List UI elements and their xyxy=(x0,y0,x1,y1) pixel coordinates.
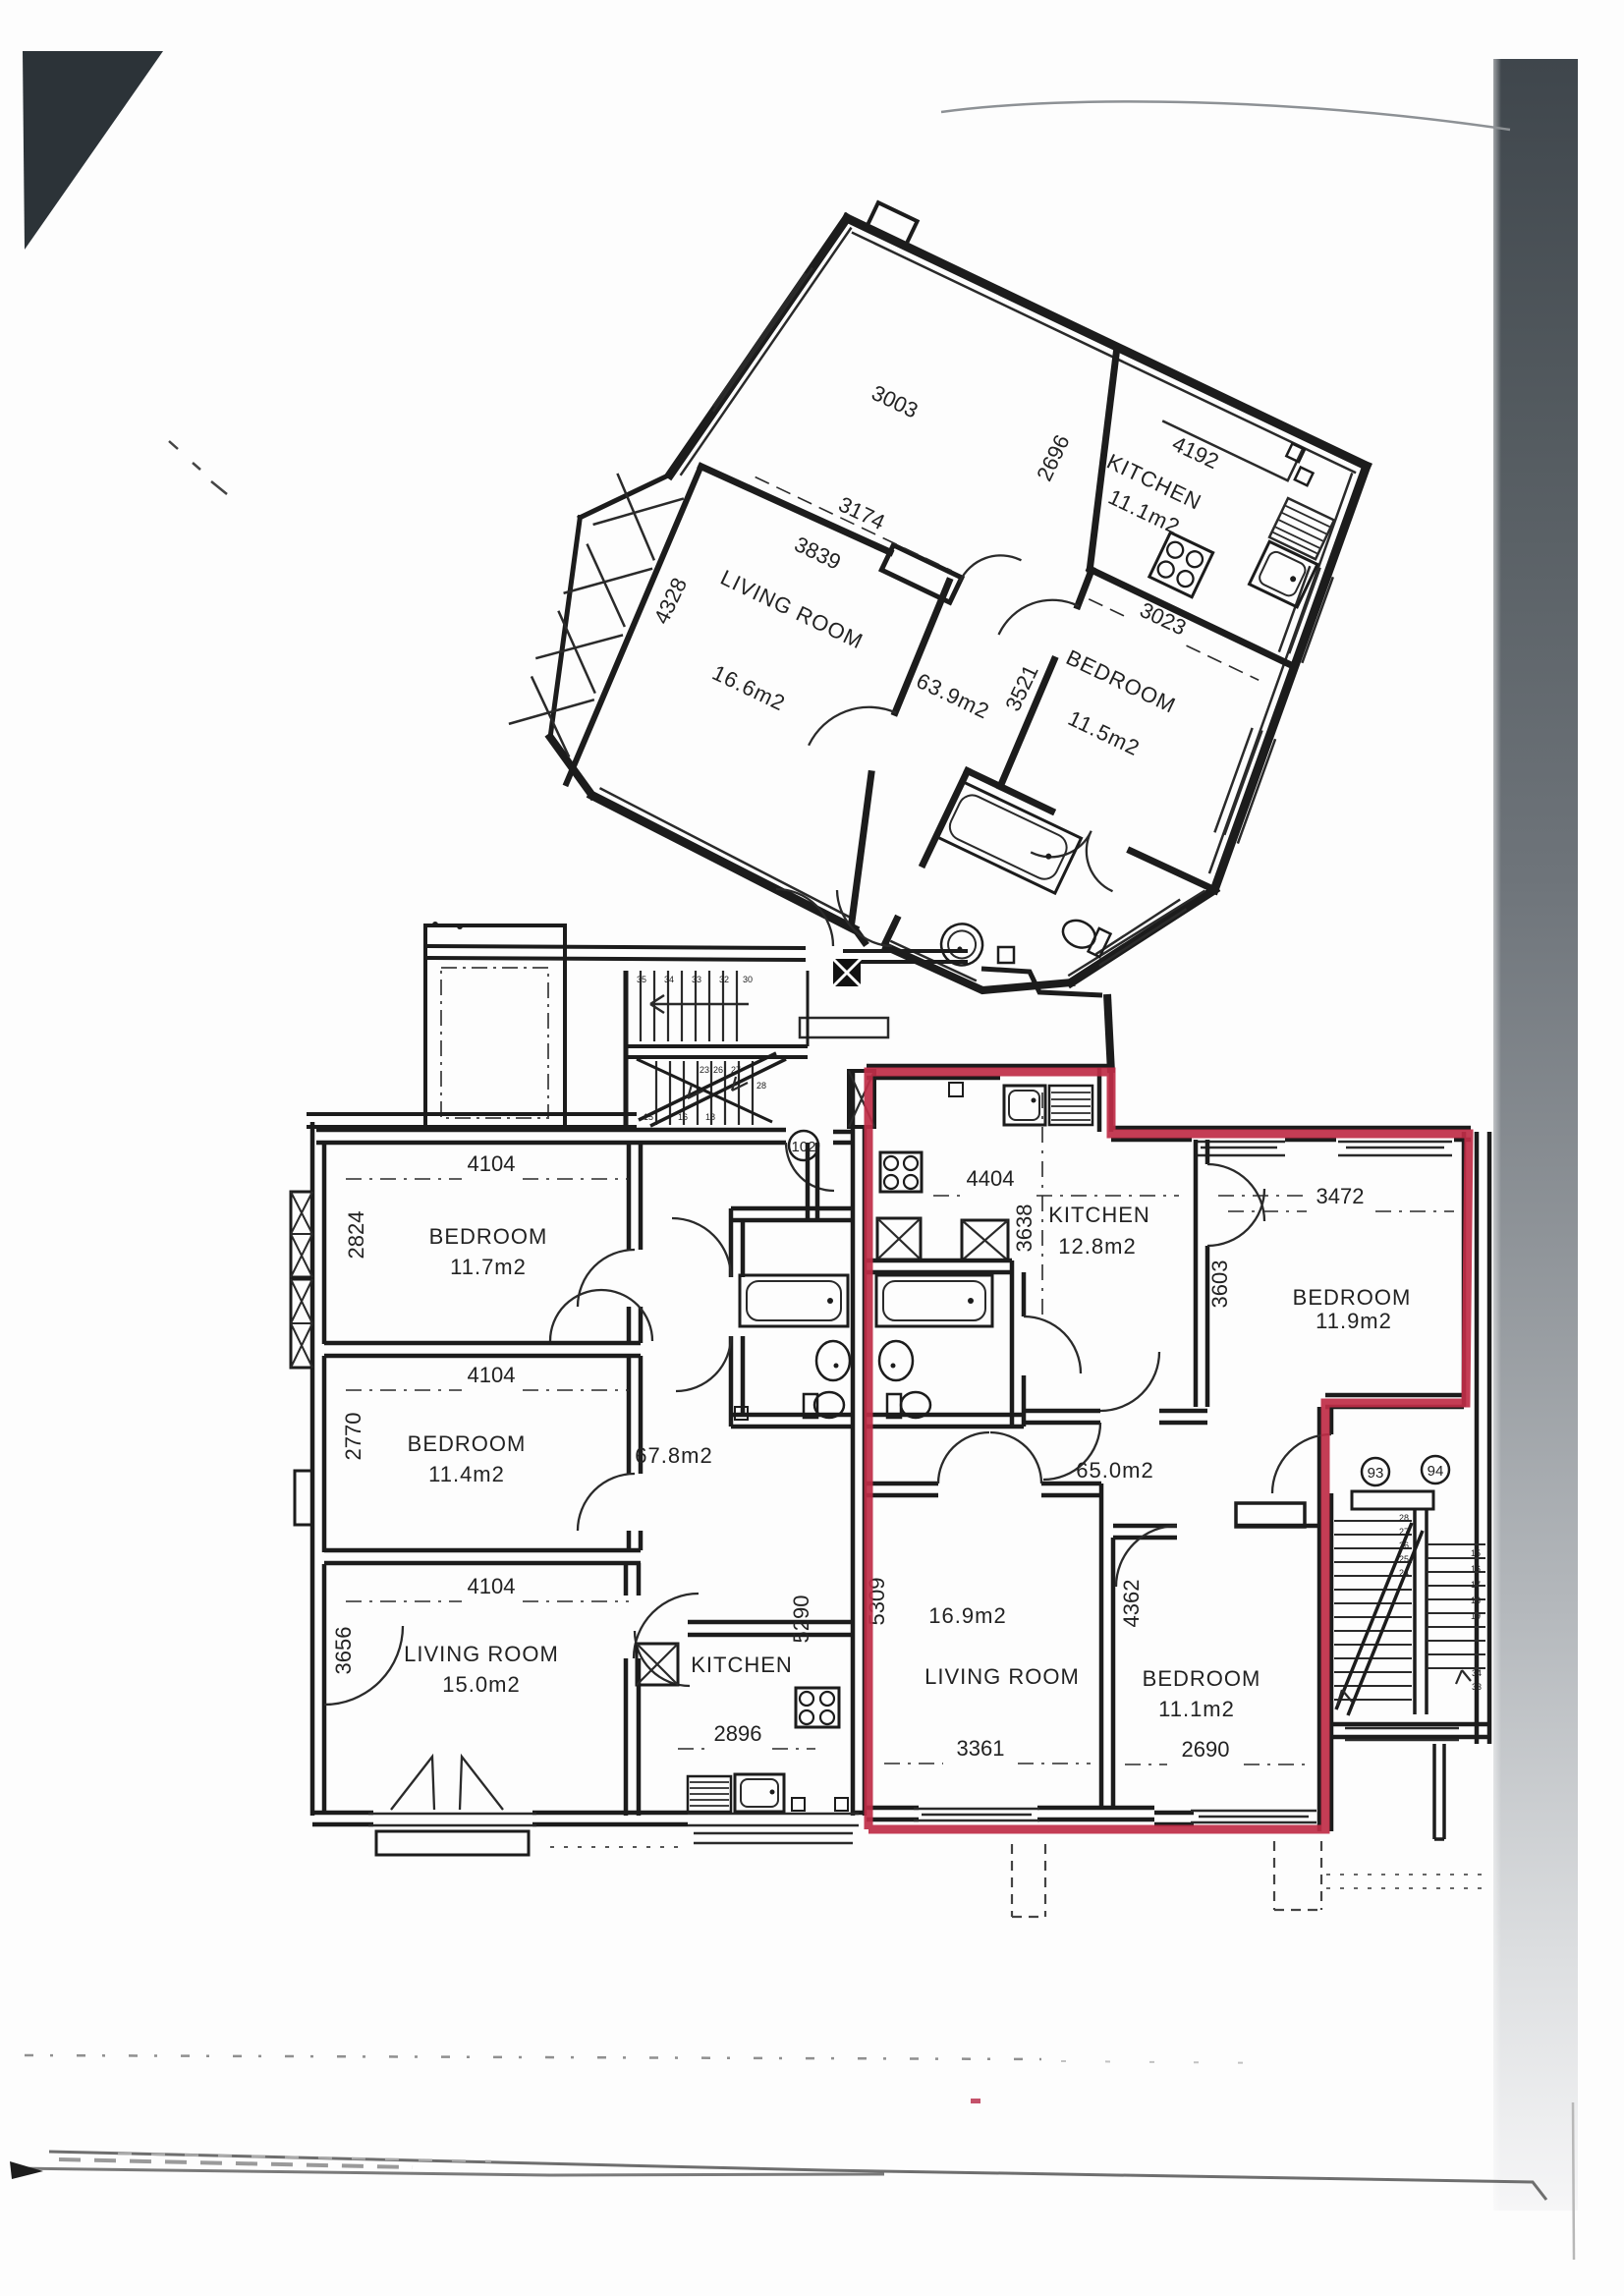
svg-text:KITCHEN: KITCHEN xyxy=(1048,1203,1150,1227)
svg-text:BEDROOM: BEDROOM xyxy=(408,1431,527,1456)
svg-text:16: 16 xyxy=(678,1112,688,1122)
svg-text:2824: 2824 xyxy=(344,1211,368,1260)
svg-text:LIVING ROOM: LIVING ROOM xyxy=(924,1664,1080,1689)
svg-text:LIVING ROOM: LIVING ROOM xyxy=(717,565,868,653)
svg-text:BEDROOM: BEDROOM xyxy=(429,1224,548,1249)
svg-text:24: 24 xyxy=(1399,1568,1409,1578)
svg-text:35: 35 xyxy=(637,975,646,984)
svg-text:33: 33 xyxy=(692,975,701,984)
svg-text:11.5m2: 11.5m2 xyxy=(1064,705,1144,760)
svg-text:67.8m2: 67.8m2 xyxy=(635,1443,712,1468)
svg-text:26: 26 xyxy=(713,1065,723,1075)
svg-text:2896: 2896 xyxy=(714,1721,762,1746)
svg-text:34: 34 xyxy=(664,975,674,984)
svg-text:30: 30 xyxy=(743,975,753,984)
svg-text:4362: 4362 xyxy=(1119,1580,1144,1628)
svg-text:15.0m2: 15.0m2 xyxy=(442,1672,520,1697)
svg-text:4104: 4104 xyxy=(468,1574,516,1598)
svg-text:102: 102 xyxy=(791,1139,815,1155)
svg-text:63.9m2: 63.9m2 xyxy=(913,668,993,724)
svg-text:16.9m2: 16.9m2 xyxy=(928,1603,1006,1628)
svg-text:BEDROOM: BEDROOM xyxy=(1293,1285,1412,1310)
svg-text:LIVING ROOM: LIVING ROOM xyxy=(404,1642,559,1666)
svg-text:KITCHEN: KITCHEN xyxy=(691,1652,793,1677)
svg-text:3656: 3656 xyxy=(331,1627,356,1675)
svg-text:4328: 4328 xyxy=(648,574,692,628)
svg-text:4104: 4104 xyxy=(468,1363,516,1387)
svg-text:19: 19 xyxy=(1471,1611,1481,1621)
svg-text:2770: 2770 xyxy=(341,1413,365,1461)
svg-text:5290: 5290 xyxy=(789,1596,813,1644)
svg-text:4404: 4404 xyxy=(967,1166,1015,1191)
svg-text:34: 34 xyxy=(1472,1668,1482,1678)
svg-text:17: 17 xyxy=(1471,1580,1481,1590)
svg-text:27: 27 xyxy=(1399,1527,1409,1537)
svg-text:33: 33 xyxy=(1472,1682,1482,1692)
svg-text:3472: 3472 xyxy=(1316,1184,1365,1208)
svg-text:32: 32 xyxy=(719,975,729,984)
svg-text:16.6m2: 16.6m2 xyxy=(708,660,789,716)
svg-text:12.8m2: 12.8m2 xyxy=(1058,1234,1136,1259)
svg-text:16: 16 xyxy=(1471,1564,1481,1574)
svg-text:26: 26 xyxy=(1399,1540,1409,1550)
svg-text:11.9m2: 11.9m2 xyxy=(1316,1309,1392,1333)
svg-text:2690: 2690 xyxy=(1182,1737,1230,1762)
svg-text:3839: 3839 xyxy=(791,532,845,575)
svg-text:18: 18 xyxy=(1471,1596,1481,1605)
svg-text:28: 28 xyxy=(756,1081,766,1091)
svg-text:15: 15 xyxy=(644,1112,653,1122)
svg-text:15: 15 xyxy=(1471,1548,1481,1558)
svg-text:65.0m2: 65.0m2 xyxy=(1076,1458,1153,1483)
svg-text:23: 23 xyxy=(700,1065,709,1075)
svg-text:BEDROOM: BEDROOM xyxy=(1143,1666,1261,1691)
svg-text:27: 27 xyxy=(731,1065,741,1075)
svg-text:93: 93 xyxy=(1368,1465,1384,1482)
svg-text:2696: 2696 xyxy=(1032,431,1075,485)
svg-text:3003: 3003 xyxy=(868,380,922,423)
svg-text:94: 94 xyxy=(1428,1463,1444,1480)
svg-text:11.4m2: 11.4m2 xyxy=(428,1462,505,1486)
svg-text:25: 25 xyxy=(1399,1554,1409,1564)
svg-text:3603: 3603 xyxy=(1207,1260,1232,1309)
svg-text:11.7m2: 11.7m2 xyxy=(450,1255,527,1279)
svg-text:4104: 4104 xyxy=(468,1151,516,1176)
svg-text:3361: 3361 xyxy=(957,1736,1005,1761)
svg-text:11.1m2: 11.1m2 xyxy=(1158,1697,1235,1721)
svg-text:18: 18 xyxy=(705,1112,715,1122)
svg-text:3638: 3638 xyxy=(1012,1204,1036,1253)
svg-text:28: 28 xyxy=(1399,1513,1409,1523)
